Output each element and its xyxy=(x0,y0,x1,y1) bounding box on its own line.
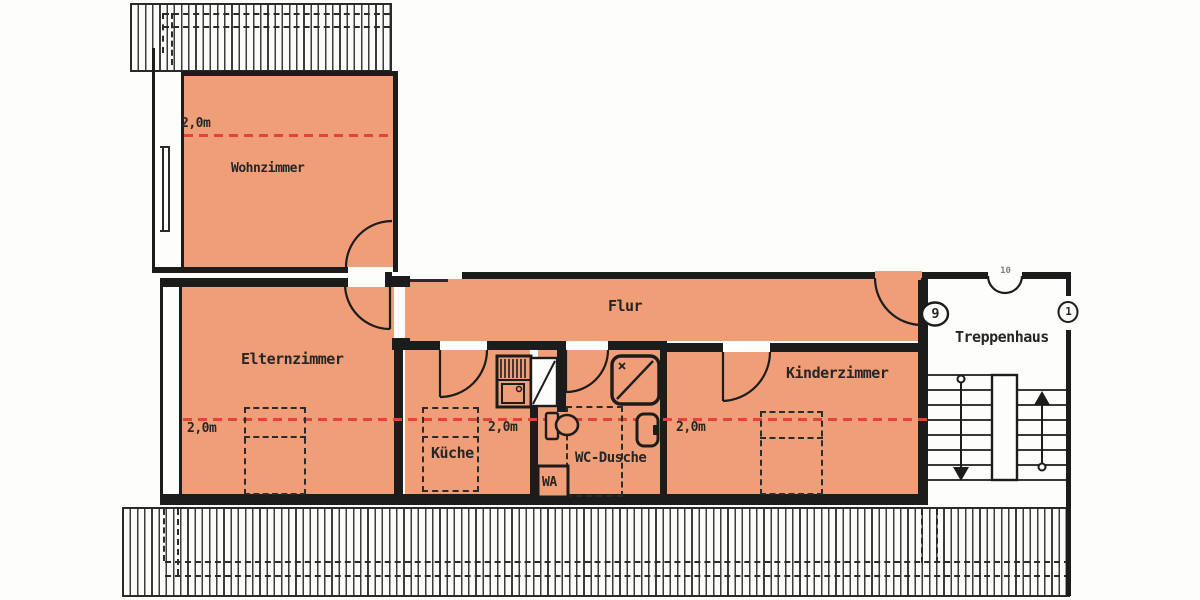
room-label-kueche: Küche xyxy=(431,444,474,462)
stairs-up-arrow xyxy=(1034,391,1050,471)
door-arc-kueche xyxy=(440,350,487,397)
room-label-kinderzimmer: Kinderzimmer xyxy=(786,364,888,382)
toilet-icon xyxy=(546,413,578,439)
room-label-wc-dusche: WC-Dusche xyxy=(575,450,646,466)
washing-machine-label: WA xyxy=(542,475,557,490)
door-arc-wc xyxy=(566,350,608,392)
shaft-symbol xyxy=(531,358,557,406)
height-marker: 2,0m xyxy=(676,420,705,435)
fixtures-layer xyxy=(0,0,1200,600)
floor-plan: Wohnzimmer Elternzimmer Flur Küche WC-Du… xyxy=(0,0,1200,600)
height-marker: 2,0m xyxy=(187,421,216,436)
door-arc-wohnzimmer xyxy=(346,221,392,267)
door-arc-neighbor xyxy=(988,276,1022,293)
door-badge-1: 1 xyxy=(1063,305,1074,318)
kitchen-sink-unit xyxy=(497,356,531,407)
shower-icon xyxy=(612,356,659,404)
washbasin-icon xyxy=(637,414,659,446)
door-arc-entrance xyxy=(875,278,922,325)
room-label-flur: Flur xyxy=(608,297,642,315)
height-marker: 2,0m xyxy=(488,420,517,435)
room-label-treppenhaus: Treppenhaus xyxy=(955,328,1049,346)
height-marker: 2,0m xyxy=(181,116,210,131)
door-arc-kinderzimmer xyxy=(723,352,770,401)
room-label-elternzimmer: Elternzimmer xyxy=(241,350,343,368)
door-badge-10: 10 xyxy=(999,266,1012,276)
door-badge-9: 9 xyxy=(929,306,942,322)
room-label-wohnzimmer: Wohnzimmer xyxy=(231,161,304,176)
door-arc-elternzimmer xyxy=(345,284,390,329)
